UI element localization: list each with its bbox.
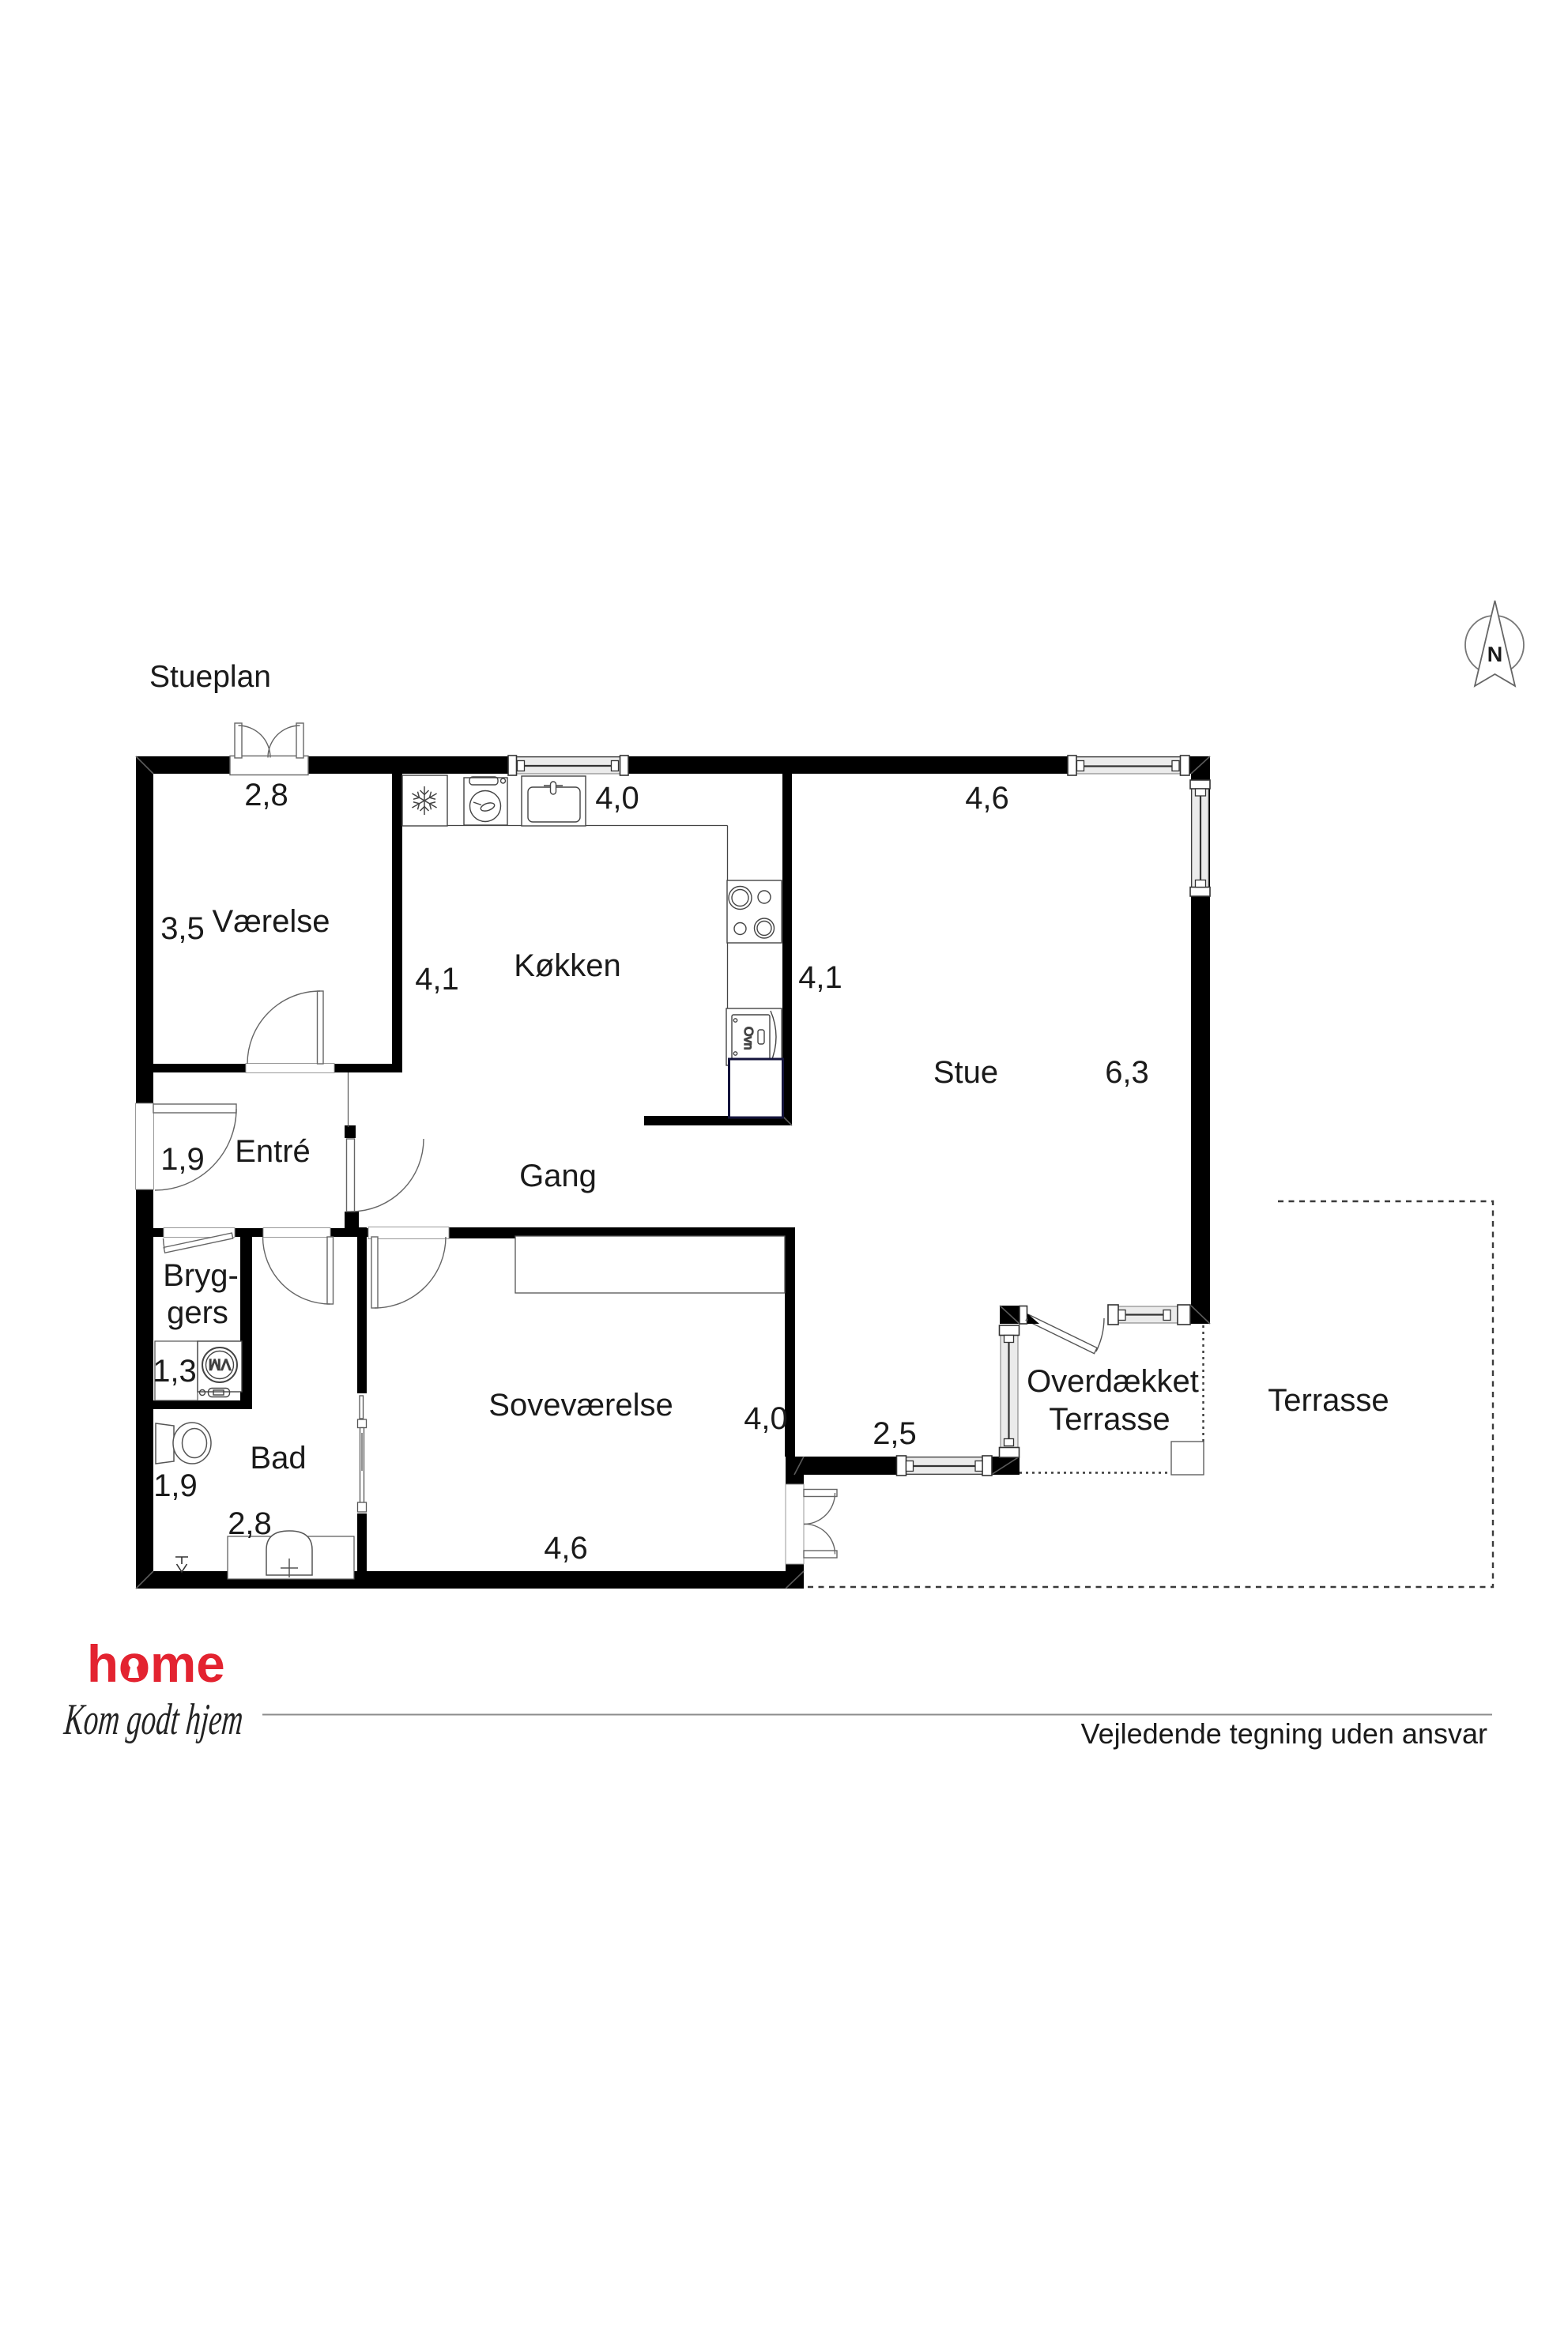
svg-text:Vejledende tegning uden ansvar: Vejledende tegning uden ansvar	[1081, 1717, 1487, 1750]
svg-text:Terrasse: Terrasse	[1268, 1383, 1389, 1418]
svg-text:4,0: 4,0	[744, 1401, 788, 1436]
svg-text:4,1: 4,1	[415, 962, 459, 997]
svg-text:4,6: 4,6	[544, 1531, 588, 1566]
svg-text:Køkken: Køkken	[514, 948, 621, 983]
svg-text:2,8: 2,8	[228, 1506, 272, 1541]
svg-text:3,5: 3,5	[160, 911, 205, 946]
svg-text:Gang: Gang	[519, 1159, 597, 1193]
svg-text:1,9: 1,9	[153, 1468, 198, 1503]
svg-text:Kom godt hjem: Kom godt hjem	[62, 1696, 245, 1744]
svg-text:Værelse: Værelse	[213, 904, 330, 939]
svg-text:Overdækket: Overdækket	[1027, 1364, 1199, 1399]
svg-text:Soveværelse: Soveværelse	[488, 1388, 673, 1423]
svg-text:Terrasse: Terrasse	[1049, 1402, 1170, 1437]
svg-text:2,8: 2,8	[244, 778, 288, 812]
svg-text:1,3: 1,3	[153, 1354, 197, 1389]
svg-text:Stue: Stue	[933, 1055, 998, 1090]
svg-text:2,5: 2,5	[873, 1416, 917, 1451]
svg-text:VM: VM	[209, 1355, 232, 1372]
svg-text:Stueplan: Stueplan	[149, 660, 271, 694]
svg-text:gers: gers	[167, 1295, 228, 1330]
svg-text:Bryg-: Bryg-	[163, 1258, 239, 1293]
svg-text:N: N	[1487, 643, 1503, 666]
svg-text:4,0: 4,0	[595, 781, 639, 816]
svg-text:Bad: Bad	[250, 1441, 306, 1476]
svg-text:Ovn: Ovn	[741, 1027, 755, 1050]
svg-text:4,6: 4,6	[965, 781, 1009, 816]
svg-text:4,1: 4,1	[798, 960, 842, 995]
svg-text:home: home	[87, 1635, 225, 1693]
svg-text:6,3: 6,3	[1105, 1055, 1149, 1090]
svg-text:1,9: 1,9	[160, 1142, 205, 1177]
svg-text:Entré: Entré	[235, 1134, 311, 1169]
